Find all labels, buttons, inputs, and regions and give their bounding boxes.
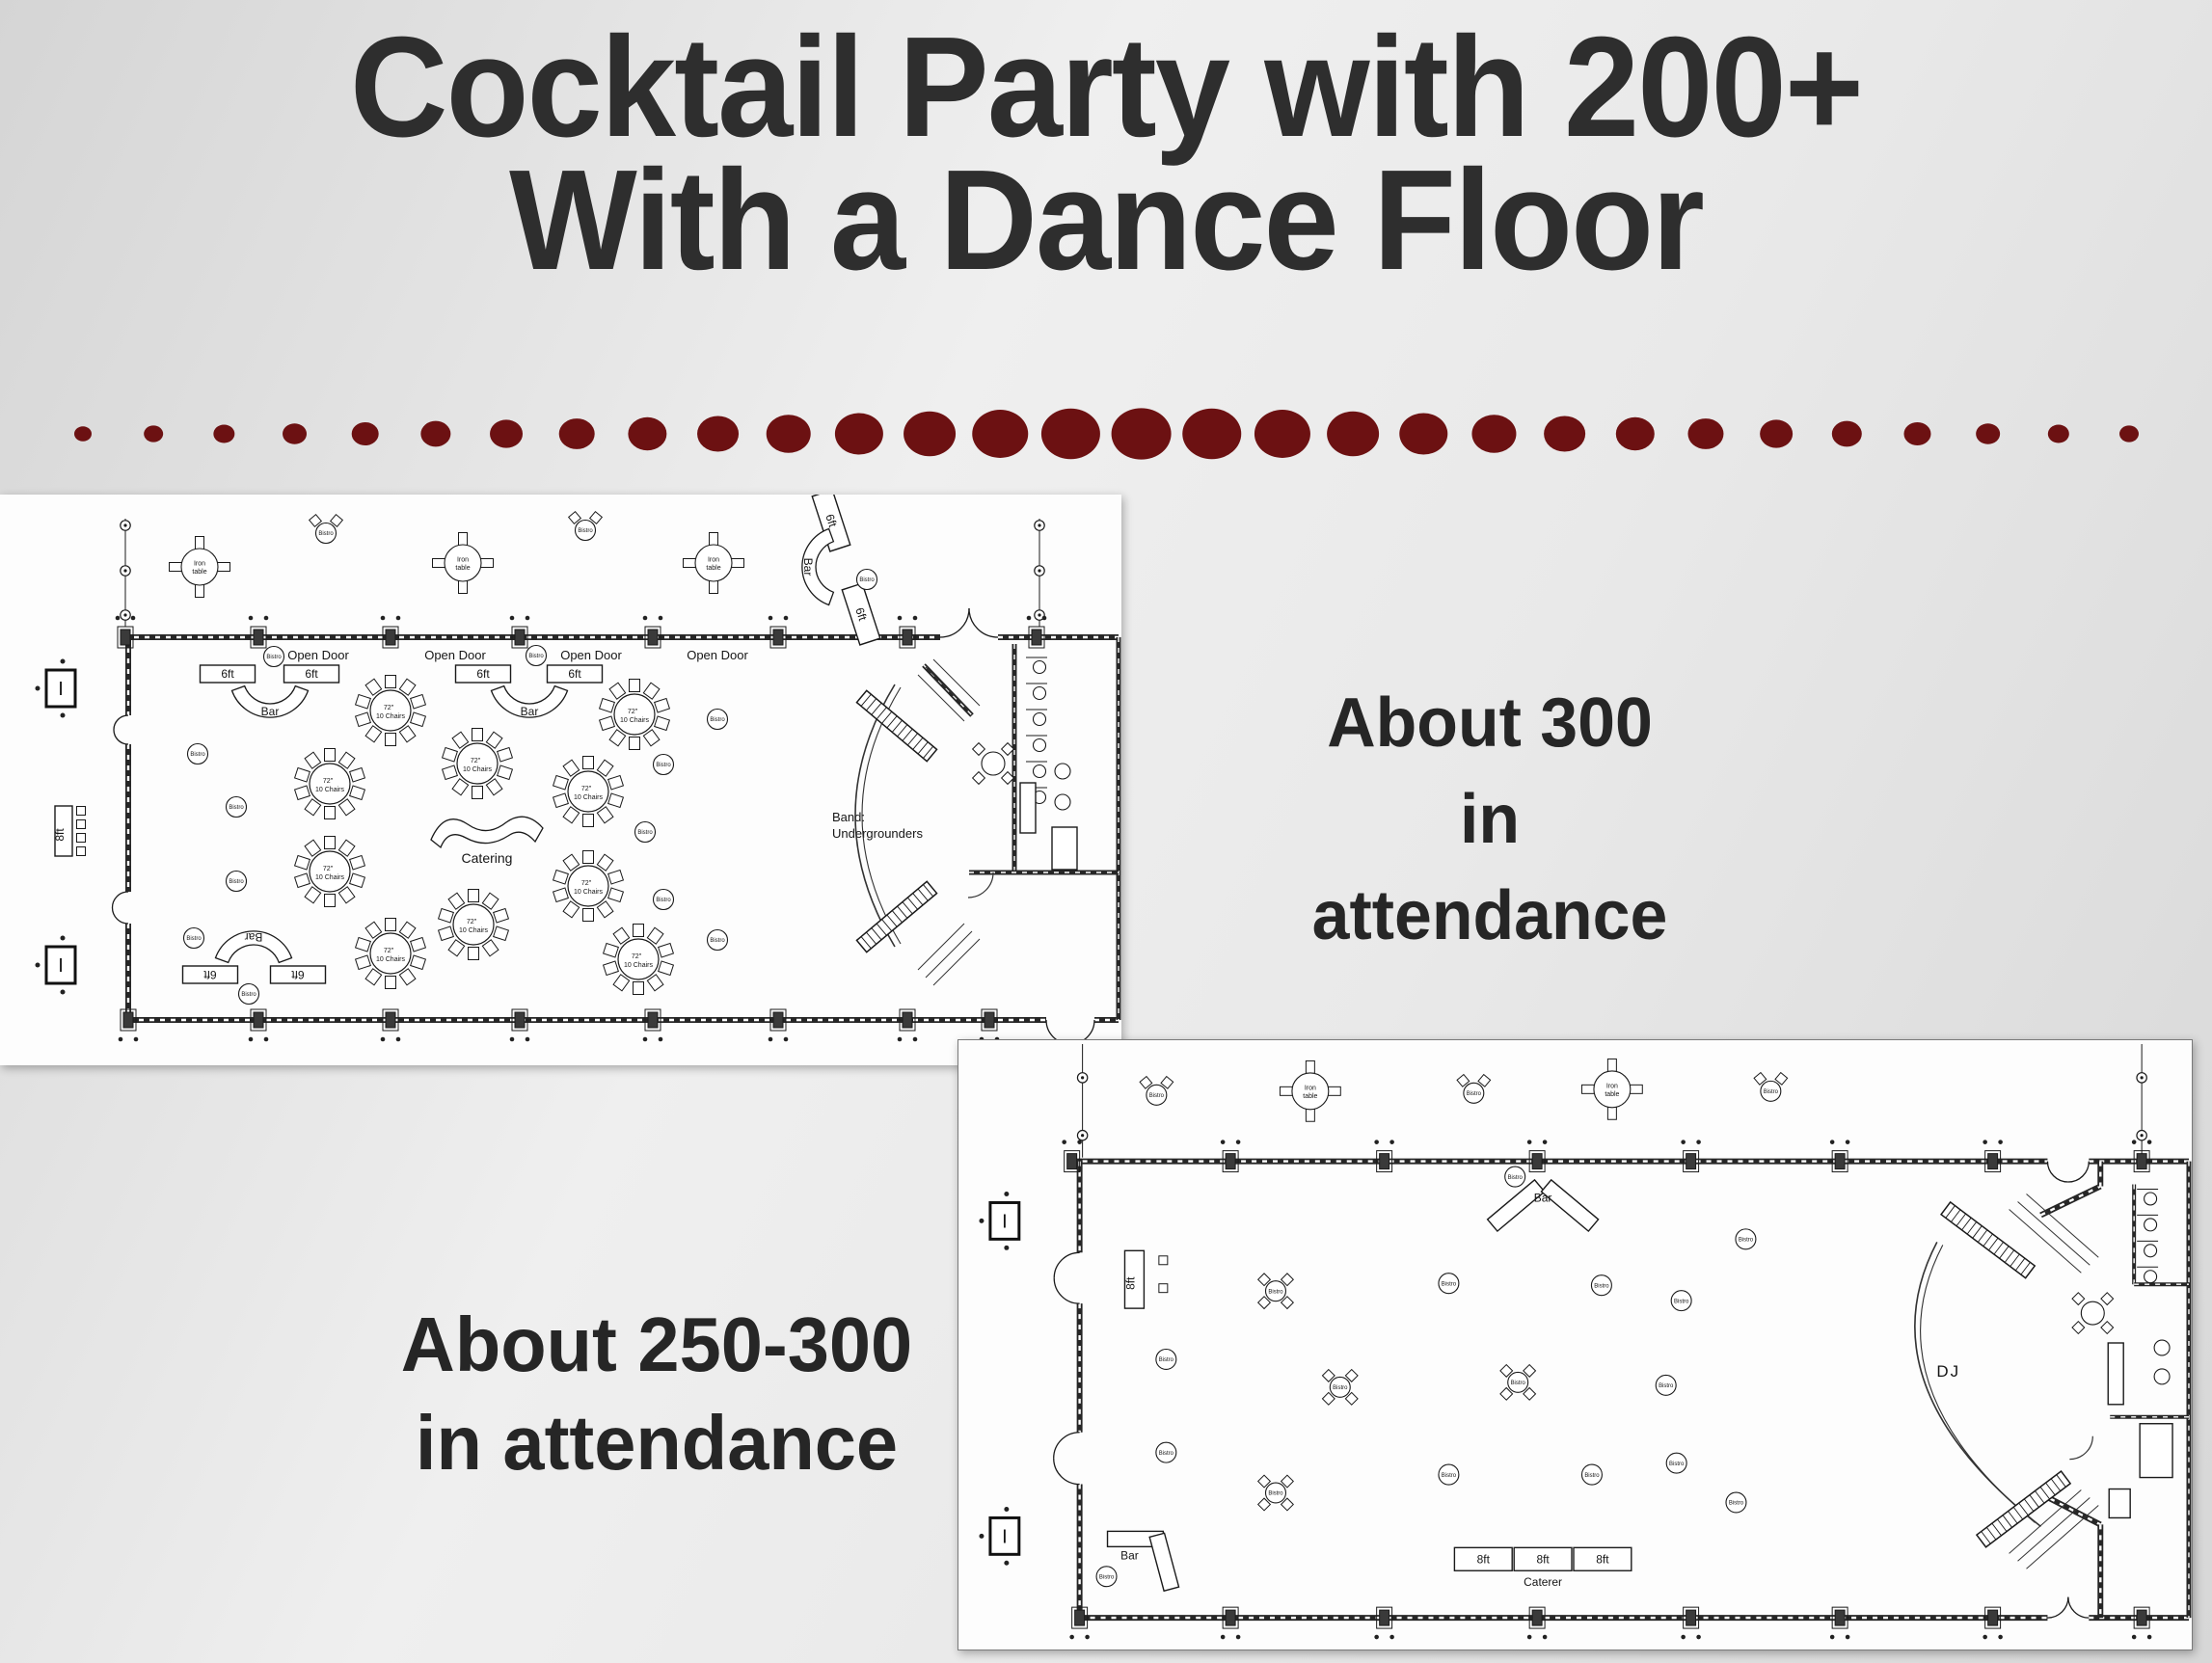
round-table-72in: 72″10 Chairs <box>553 851 624 922</box>
rect-table: 8ft <box>53 806 72 856</box>
plan-label: Iron <box>1606 1083 1618 1089</box>
catering-table <box>431 817 543 847</box>
divider-dots <box>0 0 2212 482</box>
dot <box>1616 417 1655 450</box>
rect-table: 6ft <box>456 665 511 683</box>
round-table-72in: 72″10 Chairs <box>553 757 624 827</box>
plan-label: table <box>1303 1093 1317 1100</box>
column <box>1374 1140 1394 1171</box>
plan-label: Bistro <box>578 528 593 534</box>
column <box>381 616 401 648</box>
bistro-table: Bistro <box>1156 1349 1176 1369</box>
stall-fixture <box>2137 1215 2158 1230</box>
plan-label: 6ft <box>203 968 217 981</box>
bistro-table: Bistro <box>857 570 877 590</box>
plan-label: 6ft <box>221 667 234 681</box>
bistro-table: Bistro <box>1754 1073 1788 1102</box>
plan-label: 72″ <box>632 953 642 960</box>
plan-label: 72″ <box>581 786 592 792</box>
dot <box>144 425 163 442</box>
column <box>769 1009 789 1041</box>
column <box>1983 1140 2003 1171</box>
fixture-circle <box>2154 1369 2170 1384</box>
bistro-table: Bistro <box>1457 1075 1491 1104</box>
plan-label: Iron <box>708 557 719 564</box>
plan-label: Bistro <box>1099 1574 1115 1580</box>
chair <box>77 834 86 843</box>
column <box>510 616 530 648</box>
round-table-72in: 72″10 Chairs <box>356 676 426 746</box>
dot <box>1832 421 1862 447</box>
column <box>980 1009 1000 1041</box>
double-door <box>1054 1433 1080 1485</box>
plan-label: Iron <box>1305 1085 1316 1091</box>
dot <box>767 415 811 453</box>
column <box>119 1009 139 1041</box>
dot <box>835 414 883 455</box>
dot <box>1182 409 1241 459</box>
column <box>2132 1607 2152 1639</box>
plan-label: I <box>1002 1211 1008 1232</box>
dot <box>1254 410 1310 458</box>
column <box>1027 616 1047 648</box>
column <box>510 1009 530 1041</box>
caption-about-250-300: About 250-300 in attendance <box>401 1296 912 1492</box>
plan-label: Bistro <box>1511 1381 1526 1386</box>
plan-line <box>968 872 993 898</box>
rect-table: 6ft <box>183 966 238 983</box>
rect-table: 6ft <box>548 665 603 683</box>
dot <box>490 419 523 447</box>
plan-label: Bar <box>245 930 263 944</box>
plan-line <box>918 659 980 721</box>
double-door <box>113 892 129 924</box>
plan-label: 6ft <box>476 667 490 681</box>
plan-label: table <box>192 569 206 576</box>
bistro-table: Bistro <box>526 646 547 666</box>
bistro-table: Bistro <box>1439 1464 1459 1485</box>
bistro-table: Bistro <box>184 928 204 949</box>
bistro-table: Bistro <box>635 822 656 843</box>
rect-table <box>1541 1180 1598 1231</box>
leader-line <box>121 519 130 627</box>
plan-label: Bistro <box>229 805 244 811</box>
column <box>249 1009 269 1041</box>
plan-label: Open Door <box>424 648 486 662</box>
plan-line <box>2069 1436 2092 1460</box>
plan-label: Bistro <box>266 655 282 660</box>
round-table <box>2072 1293 2114 1334</box>
plan-label: I <box>58 955 64 977</box>
column <box>1527 1140 1548 1171</box>
round-table <box>973 743 1014 785</box>
plan-line <box>1915 1242 2041 1526</box>
column <box>769 616 789 648</box>
double-door <box>2047 1597 2089 1618</box>
column <box>1830 1140 1850 1171</box>
caption-line: About 250-300 <box>401 1296 912 1394</box>
double-door <box>940 608 998 637</box>
plan-label: table <box>706 565 720 572</box>
floor-symbol: I <box>36 659 76 718</box>
bistro-table: Bistro <box>1258 1274 1294 1309</box>
plan-label: Bistro <box>1764 1089 1779 1095</box>
plan-label: Iron <box>457 557 469 564</box>
round-table-72in: 72″10 Chairs <box>295 837 365 907</box>
bistro-table: Bistro <box>1322 1370 1358 1406</box>
bistro-table: Bistro <box>1726 1492 1746 1513</box>
chair <box>1159 1284 1168 1293</box>
leader-line <box>1035 519 1044 627</box>
plan-label: table <box>1605 1091 1619 1098</box>
column <box>643 616 663 648</box>
plan-label: Bar <box>801 558 815 577</box>
plan-label: Bistro <box>229 879 244 885</box>
leader-line <box>2137 1044 2146 1158</box>
bistro-table: Bistro <box>569 512 603 541</box>
chair <box>77 820 86 829</box>
bistro-table: Bistro <box>1156 1442 1176 1462</box>
bistro-table: Bistro <box>1505 1167 1525 1187</box>
plan-label: 10 Chairs <box>620 717 649 724</box>
rect-table <box>1149 1533 1178 1591</box>
stall-fixture <box>2137 1241 2158 1256</box>
plan-label: Bistro <box>190 752 205 758</box>
plan-label: Bistro <box>1674 1299 1689 1304</box>
column <box>1681 1607 1701 1639</box>
plan-label: table <box>455 565 470 572</box>
plan-label: 6ft <box>305 667 318 681</box>
dot <box>74 426 92 441</box>
dot <box>1544 416 1585 452</box>
rect-table: 6ft <box>201 665 256 683</box>
double-door <box>114 715 128 744</box>
dot <box>904 412 956 456</box>
plan-label: 6ft <box>291 968 305 981</box>
iron-table: Irontable <box>684 533 744 594</box>
plan-label: Band: <box>832 810 865 824</box>
plan-label: 8ft <box>1123 1276 1137 1290</box>
column <box>1374 1607 1394 1639</box>
floor-symbol: I <box>979 1192 1018 1250</box>
plan-label: Bistro <box>1333 1385 1348 1391</box>
rect-table: 8ft <box>1454 1547 1512 1570</box>
plan-label: 10 Chairs <box>315 787 344 793</box>
bistro-table: Bistro <box>654 755 674 775</box>
plan-label: 10 Chairs <box>463 766 492 773</box>
bistro-table: Bistro <box>708 930 728 951</box>
plan-label: I <box>1002 1526 1008 1547</box>
dot <box>420 421 450 447</box>
round-table-72in: 72″10 Chairs <box>604 925 674 995</box>
rect-table <box>1020 783 1036 833</box>
plan-label: Bistro <box>859 577 875 583</box>
rect-table: 8ft <box>1514 1547 1572 1570</box>
bistro-table: Bistro <box>264 647 284 667</box>
plan-label: Bistro <box>1508 1175 1524 1181</box>
bistro-table: Bistro <box>310 515 343 544</box>
plan-label: Bistro <box>1584 1473 1600 1479</box>
bistro-table: Bistro <box>1656 1375 1676 1395</box>
round-table-72in: 72″10 Chairs <box>356 919 426 989</box>
bistro-table: Bistro <box>1736 1229 1756 1249</box>
bistro-table: Bistro <box>227 797 247 818</box>
dot <box>1976 423 2000 444</box>
plan-label: 72″ <box>581 880 592 887</box>
column <box>1983 1607 2003 1639</box>
bistro-table: Bistro <box>1439 1274 1459 1294</box>
rect-table <box>1052 827 1077 870</box>
plan-line <box>918 924 980 985</box>
bistro-table: Bistro <box>1581 1464 1602 1485</box>
iron-table: Irontable <box>1280 1060 1340 1121</box>
column <box>1221 1607 1241 1639</box>
bistro-table: Bistro <box>188 744 208 764</box>
caption-about-300: About 300 in attendance <box>1312 675 1668 964</box>
plan-label: Bistro <box>1467 1091 1482 1097</box>
plan-label: 72″ <box>384 705 394 711</box>
bar-table: Bar <box>801 529 833 605</box>
caption-line: in attendance <box>401 1394 912 1492</box>
caption-line: attendance <box>1312 868 1668 964</box>
dot <box>1041 409 1100 459</box>
column <box>1069 1607 1090 1639</box>
plan-label: 8ft <box>1477 1552 1491 1566</box>
bistro-table: Bistro <box>1096 1567 1117 1587</box>
plan-label: Undergrounders <box>832 826 923 841</box>
dot <box>1112 408 1172 459</box>
stall-fixture <box>1026 762 1047 778</box>
plan-label: Bistro <box>1268 1289 1283 1295</box>
fixture-circle <box>2154 1340 2170 1355</box>
plan-label: 72″ <box>323 866 334 872</box>
chair <box>77 847 86 856</box>
iron-table: Irontable <box>170 537 230 598</box>
column <box>1527 1607 1548 1639</box>
plan-label: I <box>58 679 64 700</box>
bistro-table: Bistro <box>654 890 674 910</box>
floor-symbol: I <box>979 1507 1018 1566</box>
plan-label: 10 Chairs <box>376 956 405 963</box>
plan-label: Iron <box>194 561 205 568</box>
round-table-72in: 72″10 Chairs <box>600 680 670 750</box>
dot <box>697 416 739 452</box>
round-table-72in: 72″10 Chairs <box>439 890 509 960</box>
plan-label: Bar <box>521 705 539 718</box>
plan-label: 10 Chairs <box>376 713 405 720</box>
bar-table: Bar <box>232 686 309 718</box>
floor-plan-300-panel: Open DoorOpen DoorOpen DoorOpen DoorIron… <box>0 495 1121 1065</box>
plan-label: 72″ <box>384 948 394 954</box>
bistro-table: Bistro <box>708 710 728 730</box>
column <box>249 616 269 648</box>
fixture-circle <box>1055 794 1070 810</box>
plan-label: 72″ <box>467 919 477 925</box>
plan-label: Bistro <box>1268 1491 1283 1497</box>
plan-label: Catering <box>462 850 513 866</box>
column <box>898 616 918 648</box>
stall-fixture <box>2137 1190 2158 1205</box>
stall-fixture <box>1026 657 1047 674</box>
plan-label: Bistro <box>637 830 653 836</box>
dot <box>972 410 1028 458</box>
stage-stairs <box>1941 1202 2035 1278</box>
stall-fixture <box>2137 1267 2158 1282</box>
stall-fixture <box>1026 710 1047 726</box>
dot <box>213 425 234 443</box>
slide: Cocktail Party with 200+ With a Dance Fl… <box>0 0 2212 1663</box>
dot <box>1687 418 1723 449</box>
floor-plan-250-300-panel: BistroBistroBistroIrontableIrontableII8f… <box>958 1039 2193 1650</box>
plan-label: Bistro <box>1659 1383 1674 1389</box>
caption-line: About 300 <box>1312 675 1668 771</box>
rect-table <box>2140 1424 2172 1478</box>
column <box>898 1009 918 1041</box>
rect-table: 8ft <box>1123 1250 1144 1308</box>
plan-label: Bar <box>261 705 280 718</box>
rect-table: 8ft <box>1574 1547 1632 1570</box>
plan-label: 72″ <box>471 758 481 764</box>
plan-label: 8ft <box>53 828 67 842</box>
chair <box>1159 1256 1168 1265</box>
column <box>1221 1140 1241 1171</box>
plan-label: Bistro <box>1669 1462 1685 1467</box>
plan-label: 10 Chairs <box>624 962 653 969</box>
bistro-table: Bistro <box>1671 1291 1691 1311</box>
plan-label: Bistro <box>656 898 671 903</box>
floor-plan-300: Open DoorOpen DoorOpen DoorOpen DoorIron… <box>0 495 1121 1065</box>
plan-label: Bar <box>1120 1548 1139 1562</box>
bar-table: Bar <box>492 686 568 718</box>
rect-table <box>1488 1180 1545 1231</box>
dot <box>628 417 666 450</box>
iron-table: Irontable <box>433 533 494 594</box>
plan-label: 6ft <box>568 667 581 681</box>
bistro-table: Bistro <box>239 984 259 1005</box>
plan-label: Bistro <box>656 763 671 768</box>
caption-line: in <box>1312 771 1668 868</box>
bistro-table: Bistro <box>1500 1365 1536 1401</box>
plan-label: DJ <box>1936 1362 1960 1381</box>
plan-label: Bistro <box>528 654 544 659</box>
bistro-table: Bistro <box>1140 1077 1173 1106</box>
round-table-72in: 72″10 Chairs <box>295 749 365 819</box>
bistro-table: Bistro <box>1591 1275 1611 1296</box>
stall-fixture <box>1026 736 1047 752</box>
rect-table: 6ft <box>284 665 339 683</box>
dot <box>283 423 307 444</box>
double-door <box>2047 1162 2089 1182</box>
column <box>1830 1607 1850 1639</box>
fixture-circle <box>1055 764 1070 779</box>
rect-table: 6ft <box>271 966 326 983</box>
plan-label: Bistro <box>186 936 202 942</box>
dot <box>559 418 595 449</box>
bar-table: Bar <box>216 930 292 962</box>
plan-label: Bistro <box>1442 1473 1457 1479</box>
rect-table <box>2109 1489 2130 1518</box>
plan-label: Bistro <box>1149 1093 1165 1099</box>
bistro-table: Bistro <box>227 872 247 892</box>
round-table-72in: 72″10 Chairs <box>443 729 513 799</box>
floor-symbol: I <box>36 936 76 995</box>
plan-label: 72″ <box>323 778 334 785</box>
plan-label: Bistro <box>1442 1281 1457 1287</box>
dot <box>1760 419 1793 447</box>
plan-label: Bistro <box>318 531 334 537</box>
column <box>381 1009 401 1041</box>
plan-label: Bistro <box>241 992 256 998</box>
column <box>643 1009 663 1041</box>
plan-label: Bistro <box>710 717 725 723</box>
chair <box>77 807 86 816</box>
stage-stairs <box>856 690 936 761</box>
dot <box>2119 425 2139 442</box>
dot <box>1327 412 1379 456</box>
plan-label: Open Door <box>287 648 349 662</box>
plan-label: Caterer <box>1524 1575 1562 1589</box>
plan-label: 10 Chairs <box>574 889 603 896</box>
dot <box>1399 414 1447 455</box>
plan-label: Open Door <box>687 648 748 662</box>
rect-table <box>2108 1343 2123 1405</box>
column <box>1681 1140 1701 1171</box>
plan-label: 8ft <box>1536 1552 1550 1566</box>
plan-label: 72″ <box>628 709 638 715</box>
floor-plan-250-300: BistroBistroBistroIrontableIrontableII8f… <box>958 1040 2192 1650</box>
plan-label: Bistro <box>1594 1283 1609 1289</box>
plan-label: 10 Chairs <box>459 927 488 934</box>
wall <box>2040 1187 2100 1216</box>
dot <box>1903 422 1930 445</box>
plan-label: 10 Chairs <box>315 874 344 881</box>
plan-label: Open Door <box>560 648 622 662</box>
bistro-table: Bistro <box>1258 1475 1294 1511</box>
iron-table: Irontable <box>1581 1059 1642 1119</box>
plan-label: 10 Chairs <box>574 794 603 801</box>
bistro-table: Bistro <box>1666 1453 1686 1473</box>
plan-label: Bistro <box>1159 1357 1174 1363</box>
plan-label: Bistro <box>1159 1451 1174 1457</box>
dot <box>2048 425 2069 443</box>
plan-label: Bar <box>1534 1191 1552 1204</box>
dot <box>352 422 379 445</box>
dot <box>1471 415 1516 453</box>
plan-label: 8ft <box>1596 1552 1609 1566</box>
double-door <box>1054 1252 1079 1303</box>
plan-label: Bistro <box>710 938 725 944</box>
stall-fixture <box>1026 684 1047 700</box>
plan-label: Bistro <box>1729 1501 1744 1507</box>
plan-label: Bistro <box>1739 1238 1754 1244</box>
plan-line <box>1921 1245 2036 1522</box>
